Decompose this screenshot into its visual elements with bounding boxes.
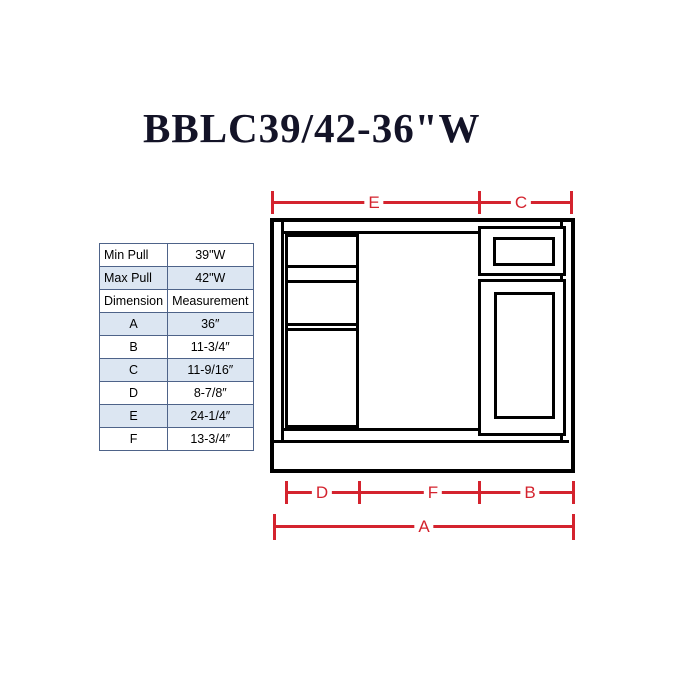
table-row: A36″ xyxy=(100,313,254,336)
dim-label-f: F xyxy=(424,484,442,502)
right-door-panel xyxy=(494,292,555,419)
toe-kick-line xyxy=(272,440,569,443)
dim-label-b: B xyxy=(520,484,539,502)
page-title: BBLC39/42-36"W xyxy=(143,104,480,152)
table-row: Min Pull39"W xyxy=(100,244,254,267)
lower-dim-tick-4 xyxy=(572,481,575,504)
spec-table-body: Min Pull39"WMax Pull42"WDimensionMeasure… xyxy=(100,244,254,451)
dimension-table: Min Pull39"WMax Pull42"WDimensionMeasure… xyxy=(99,243,254,451)
lower-dim-tick-1 xyxy=(285,481,288,504)
row-label: D xyxy=(100,382,168,405)
lower-dim-tick-2 xyxy=(358,481,361,504)
dim-label-d: D xyxy=(312,484,332,502)
dim-label-c: C xyxy=(511,194,531,212)
dim-label-a: A xyxy=(414,518,433,536)
row-value: 24-1/4″ xyxy=(168,405,253,428)
left-door-front xyxy=(285,328,359,428)
table-row: F13-3/4″ xyxy=(100,428,254,451)
row-value: 13-3/4″ xyxy=(168,428,253,451)
overall-dim-tick-right xyxy=(572,514,575,540)
top-dim-tick-left xyxy=(271,191,274,214)
row-value: 36″ xyxy=(168,313,253,336)
lower-dim-tick-3 xyxy=(478,481,481,504)
row-value: 42"W xyxy=(168,267,253,290)
bottom-rail-line xyxy=(284,428,480,431)
table-row: E24-1/4″ xyxy=(100,405,254,428)
row-value: Measurement xyxy=(168,290,253,313)
table-row: B11-3/4″ xyxy=(100,336,254,359)
table-row: Max Pull42"W xyxy=(100,267,254,290)
row-label: C xyxy=(100,359,168,382)
row-value: 11-9/16″ xyxy=(168,359,253,382)
top-dim-tick-mid xyxy=(478,191,481,214)
row-label: Max Pull xyxy=(100,267,168,290)
table-row: C11-9/16″ xyxy=(100,359,254,382)
right-drawer-panel xyxy=(493,237,555,266)
table-row: D8-7/8″ xyxy=(100,382,254,405)
overall-dim-tick-left xyxy=(273,514,276,540)
left-top-drawer-front xyxy=(285,234,359,268)
row-label: E xyxy=(100,405,168,428)
row-label: F xyxy=(100,428,168,451)
left-second-drawer-front xyxy=(285,280,359,326)
left-stile-line xyxy=(281,222,284,443)
table-row: DimensionMeasurement xyxy=(100,290,254,313)
row-label: Min Pull xyxy=(100,244,168,267)
top-dim-tick-right xyxy=(570,191,573,214)
row-value: 11-3/4″ xyxy=(168,336,253,359)
row-label: B xyxy=(100,336,168,359)
row-label: Dimension xyxy=(100,290,168,313)
row-label: A xyxy=(100,313,168,336)
dim-label-e: E xyxy=(364,194,383,212)
row-value: 8-7/8″ xyxy=(168,382,253,405)
spec-sheet: BBLC39/42-36"W Min Pull39"WMax Pull42"WD… xyxy=(0,0,700,700)
row-value: 39"W xyxy=(168,244,253,267)
